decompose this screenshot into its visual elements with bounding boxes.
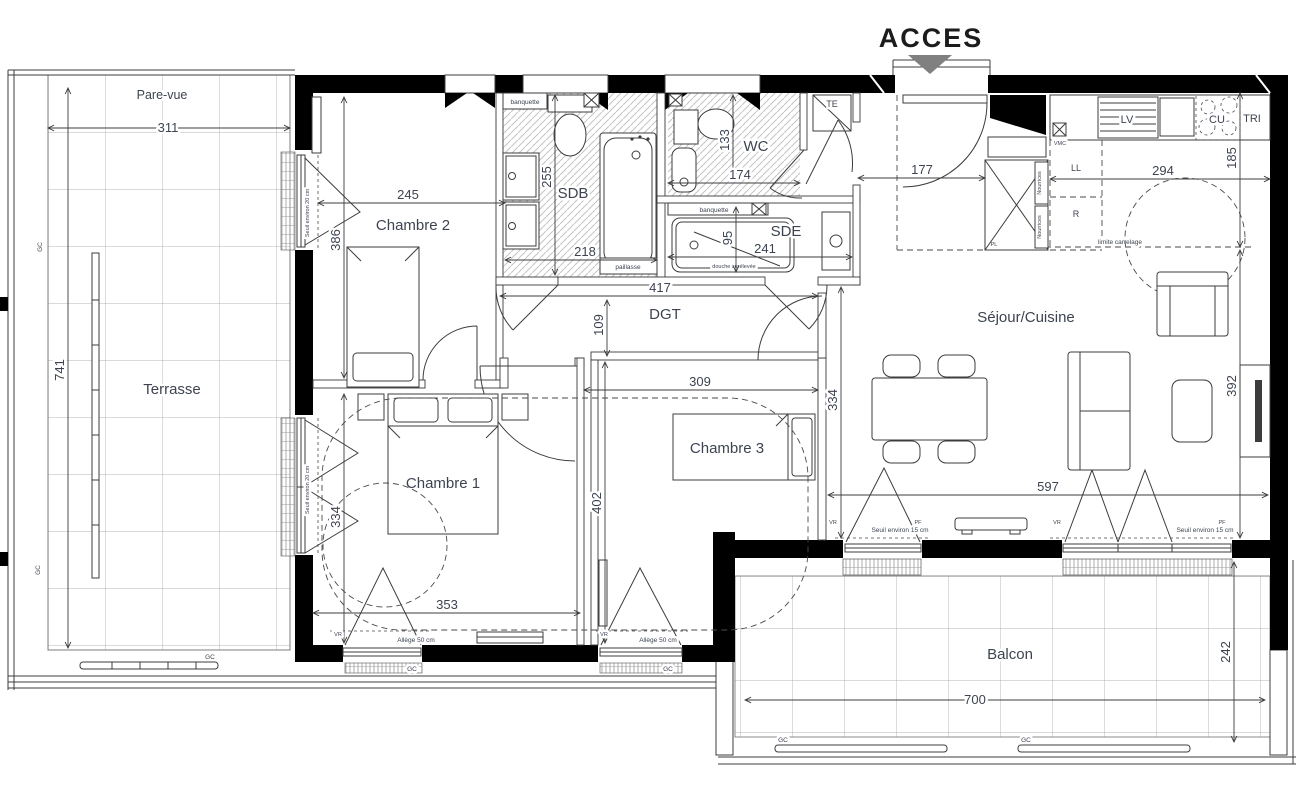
room-label-wc: WC xyxy=(744,138,769,155)
entry-closet-pl: PL Nourrices Nourrices xyxy=(985,160,1048,250)
acces-header: ACCES xyxy=(879,23,984,74)
room-label-chambre2: Chambre 2 xyxy=(376,217,450,234)
acces-arrow-icon xyxy=(908,55,952,74)
dim-wc-height: 133 xyxy=(717,129,732,151)
label-pl: PL xyxy=(991,242,998,248)
dim-sdb-height: 255 xyxy=(539,166,554,188)
floor-plan-page: Pare-vue Terrasse GC GC GC 311 741 GC GC… xyxy=(0,0,1301,800)
chambre2-door xyxy=(423,326,477,380)
annotation-vr-2: VR xyxy=(600,632,608,638)
dim-sejour-height: 392 xyxy=(1224,375,1239,397)
label-vmc-kitchen: VMC xyxy=(1054,141,1066,147)
dim-chambre3-width: 309 xyxy=(689,374,711,389)
label-r: R xyxy=(1073,209,1080,219)
annotation-seuil20-1: Seuil environ 20 cm xyxy=(305,188,311,237)
kitchen-sink xyxy=(1160,98,1194,136)
annotation-gc-3: GC xyxy=(205,654,215,661)
sde-vanity xyxy=(822,212,850,270)
room-label-sejour: Séjour/Cuisine xyxy=(977,309,1075,326)
dim-cuisine-height: 185 xyxy=(1224,147,1239,169)
dim-balcon-height: 242 xyxy=(1218,641,1233,663)
annotation-gc-4: GC xyxy=(778,737,788,744)
sde-fixtures: banquette VMC douche surélevée xyxy=(668,203,850,272)
dim-entree-width: 177 xyxy=(911,162,933,177)
label-banquette-s: banquette xyxy=(700,207,729,214)
annotation-gc-5: GC xyxy=(1021,737,1031,744)
dim-chambre13-height: 402 xyxy=(589,492,604,514)
dim-dgt-width: 417 xyxy=(649,280,671,295)
armchair xyxy=(1157,272,1228,336)
label-douche-surelevee: douche surélevée xyxy=(712,264,755,270)
dim-sejour-width: 597 xyxy=(1037,479,1059,494)
label-nourrices-2: Nourrices xyxy=(1037,215,1043,239)
dim-chambre2-width: 245 xyxy=(397,187,419,202)
wc-hand-basin xyxy=(672,148,696,192)
annotation-allege-2: Allège 50 cm xyxy=(639,637,677,644)
label-tri: TRI xyxy=(1243,113,1261,125)
dim-sde-height: 95 xyxy=(720,231,735,245)
balcon-gc-rail-1 xyxy=(775,745,947,752)
dim-pare-vue-width: 311 xyxy=(158,120,179,135)
annotation-pf-1: PF xyxy=(914,520,922,526)
dim-chambre1-height: 334 xyxy=(328,506,343,528)
label-ll: LL xyxy=(1071,163,1081,173)
radiator-chambre3 xyxy=(599,560,607,626)
te-box: TE xyxy=(813,95,851,131)
dim-dgt-height: 109 xyxy=(591,314,606,336)
label-paillasse: paillasse xyxy=(615,264,641,271)
acces-title: ACCES xyxy=(879,23,984,53)
entry-cabinet xyxy=(988,137,1046,157)
balcon-caillebotis-1 xyxy=(843,559,921,575)
balcon-area: GC GC Balcon 700 242 xyxy=(716,559,1296,764)
annotation-vr-4: VR xyxy=(1053,520,1061,526)
label-te: TE xyxy=(826,99,838,109)
label-nourrices-1: Nourrices xyxy=(1037,171,1043,195)
annotation-gc-1: GC xyxy=(37,242,44,252)
annotation-vr-1: VR xyxy=(334,632,342,638)
annotation-seuil15-1: Seuil environ 15 cm xyxy=(871,527,928,534)
label-cu: CU xyxy=(1209,114,1225,126)
label-limite-carrelage: limite carrelage xyxy=(1098,239,1142,246)
dining-table xyxy=(872,355,987,463)
coffee-table xyxy=(1172,380,1212,442)
bed-chambre2 xyxy=(347,247,419,387)
radiator-chambre1 xyxy=(477,632,543,643)
balcon-caillebotis-2 xyxy=(1063,559,1232,575)
bathtub xyxy=(600,133,656,268)
window-recess-1 xyxy=(445,75,495,108)
dim-cuisine-width: 294 xyxy=(1152,163,1174,178)
balcon-gc-rail-2 xyxy=(1018,745,1190,752)
sdb-door xyxy=(496,285,558,330)
kitchen-duct xyxy=(990,95,1046,135)
chambre3-door xyxy=(758,293,826,360)
room-label-dgt: DGT xyxy=(649,306,681,323)
floor-plan-canvas: Pare-vue Terrasse GC GC GC 311 741 GC GC… xyxy=(0,0,1301,800)
sofa xyxy=(1068,352,1130,470)
dim-sde-width: 241 xyxy=(754,241,776,256)
tv-unit xyxy=(1240,365,1270,457)
room-label-chambre3: Chambre 3 xyxy=(690,440,764,457)
radiator-chambre2 xyxy=(312,97,321,153)
annotation-gc-7: GC xyxy=(663,666,673,673)
room-label-sde: SDE xyxy=(771,223,802,240)
annotation-seuil20-2: Seuil environ 20 cm xyxy=(305,465,311,514)
room-label-terrasse: Terrasse xyxy=(143,381,201,398)
annotation-pf-2: PF xyxy=(1218,520,1226,526)
room-label-sdb: SDB xyxy=(558,185,589,202)
dim-balcon-width: 700 xyxy=(964,692,986,707)
wc-tank xyxy=(674,110,698,144)
entry-door xyxy=(893,60,990,187)
annotation-vr-3: VR xyxy=(829,520,837,526)
label-banquette-sdb: banquette xyxy=(511,99,540,106)
bed-chambre1 xyxy=(358,394,528,534)
annotation-seuil15-2: Seuil environ 15 cm xyxy=(1176,527,1233,534)
annotation-allege-1: Allège 50 cm xyxy=(397,637,435,644)
dim-sdb-width: 218 xyxy=(574,244,596,259)
room-label-balcon: Balcon xyxy=(987,646,1033,663)
radiator-sejour xyxy=(955,518,1027,534)
room-label-pare-vue: Pare-vue xyxy=(137,88,188,102)
annotation-gc-6: GC xyxy=(407,666,417,673)
dim-wc-width: 174 xyxy=(729,167,751,182)
dim-chambre3-height: 334 xyxy=(825,389,840,411)
label-lv: LV xyxy=(1121,114,1134,126)
dim-chambre1-width: 353 xyxy=(436,597,458,612)
annotation-gc-2: GC xyxy=(35,565,42,575)
room-label-chambre1: Chambre 1 xyxy=(406,475,480,492)
toilet-sdb xyxy=(554,114,586,156)
terrasse-gc-rail xyxy=(80,662,218,669)
dim-chambre2-height: 386 xyxy=(328,229,343,251)
dim-terrasse-height: 741 xyxy=(52,359,67,381)
